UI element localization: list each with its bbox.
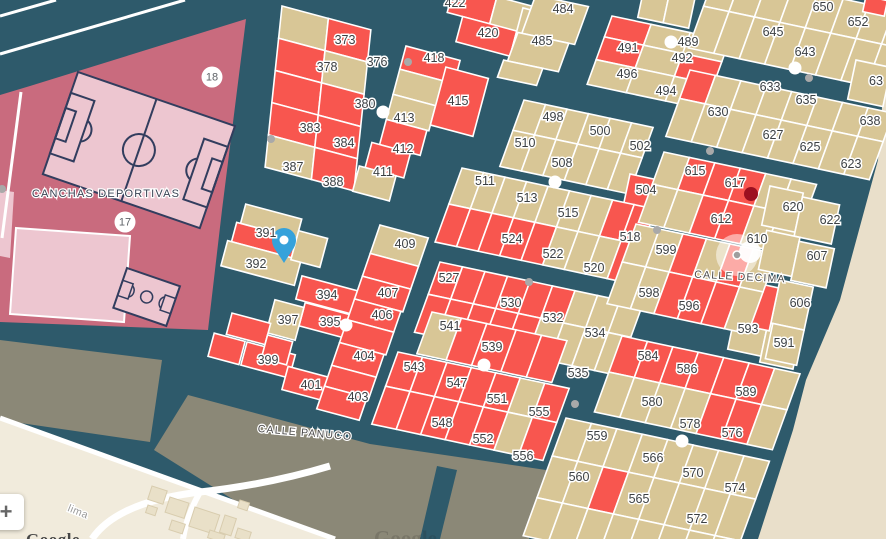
parcel-number: 422 — [445, 0, 466, 10]
parcel-number: 403 — [348, 390, 369, 404]
parcel-number: 570 — [683, 466, 704, 480]
red-dot-marker[interactable] — [744, 187, 758, 201]
parcel-number: 576 — [722, 426, 743, 440]
road-node — [665, 36, 678, 49]
parcel-number: 551 — [487, 392, 508, 406]
parcel-number: 524 — [502, 232, 523, 246]
parcel-number: 559 — [587, 429, 608, 443]
parcel-number: 539 — [482, 340, 503, 354]
road-node-small — [404, 58, 412, 66]
parcel-number: 580 — [642, 395, 663, 409]
parcel-number: 485 — [532, 34, 553, 48]
parcel-number: 615 — [685, 164, 706, 178]
parcel-number: 633 — [760, 80, 781, 94]
parcel-number: 555 — [529, 405, 550, 419]
area-label: CANCHAS DEPORTIVAS — [32, 188, 180, 200]
parcel-number: 406 — [372, 308, 393, 322]
parcel-number: 418 — [424, 51, 445, 65]
road-node-small — [525, 278, 533, 286]
parcel-number: 511 — [475, 174, 495, 188]
parcel-number: 591 — [774, 336, 795, 350]
parcel[interactable] — [663, 0, 695, 28]
parcel-number: 491 — [618, 41, 639, 55]
parcel-number: 518 — [620, 230, 641, 244]
parcel-number: 593 — [738, 322, 759, 336]
parcel-number: 63 — [869, 74, 883, 88]
parcel-number: 502 — [630, 139, 651, 153]
badge-number: 18 — [206, 72, 218, 84]
parcel-number: 543 — [404, 360, 425, 374]
road-node — [676, 435, 689, 448]
parcel-number: 584 — [638, 349, 659, 363]
parcel-number: 520 — [584, 261, 605, 275]
parcel-number: 643 — [795, 45, 816, 59]
parcel-number: 541 — [440, 319, 461, 333]
parcel-number: 504 — [636, 183, 657, 197]
parcel-number: 635 — [796, 93, 817, 107]
map-watermark: Google — [374, 526, 437, 539]
parcel-number: 560 — [569, 470, 590, 484]
parcel-number: 388 — [323, 175, 344, 189]
parcel-number: 565 — [629, 492, 650, 506]
parcel-number: 484 — [553, 2, 574, 16]
parcel-number: 500 — [590, 124, 611, 138]
parcel-number: 552 — [473, 432, 494, 446]
parcel-number: 599 — [656, 243, 677, 257]
road-node — [377, 106, 390, 119]
road-node — [478, 359, 491, 372]
parcel-number: 572 — [687, 512, 708, 526]
parcel-number: 547 — [447, 376, 468, 390]
road-node-small — [571, 400, 579, 408]
parcel-number: 399 — [258, 353, 279, 367]
parcel-number: 638 — [860, 114, 881, 128]
google-logo: Google — [26, 530, 80, 539]
parcel-number: 586 — [677, 362, 698, 376]
road-node-small — [653, 226, 661, 234]
parcel-number: 598 — [639, 286, 660, 300]
pin-hole — [280, 236, 289, 245]
parcel-number: 383 — [300, 121, 321, 135]
parcel-number: 397 — [278, 313, 299, 327]
parcel-number: 627 — [763, 128, 784, 142]
parcel-number: 373 — [335, 33, 356, 47]
parcel-number: 513 — [517, 191, 538, 205]
parcel-number: 498 — [543, 110, 564, 124]
parcel-number: 411 — [373, 165, 393, 179]
parcel-number: 548 — [432, 416, 453, 430]
parcel-number: 578 — [680, 417, 701, 431]
parcel-number: 409 — [395, 237, 416, 251]
parcel-number: 617 — [725, 176, 746, 190]
parcel-number: 589 — [736, 385, 757, 399]
parcel-number: 607 — [807, 249, 828, 263]
parcel-number: 612 — [711, 212, 732, 226]
parcel-number: 527 — [439, 271, 460, 285]
parcel-number: 492 — [672, 51, 693, 65]
parcel-number: 378 — [317, 60, 338, 74]
parcel-number: 650 — [813, 0, 834, 14]
parcel-number: 625 — [800, 140, 821, 154]
parcel-number: 420 — [478, 26, 499, 40]
parcel-number: 394 — [317, 288, 338, 302]
road-node-small — [706, 147, 714, 155]
parcel-number: 376 — [367, 55, 388, 69]
parcel-number: 623 — [841, 157, 862, 171]
parcel-number: 556 — [513, 449, 534, 463]
parcel-number: 630 — [708, 105, 729, 119]
parcel-number: 391 — [256, 226, 277, 240]
parcel-number: 489 — [678, 35, 699, 49]
parcel-number: 496 — [617, 67, 638, 81]
parcel-number: 380 — [355, 97, 376, 111]
parcel-number: 652 — [848, 15, 869, 29]
parcel-number: 622 — [820, 213, 841, 227]
parcel-number: 395 — [320, 315, 341, 329]
parcel[interactable] — [291, 231, 328, 268]
parcel-number: 387 — [283, 160, 304, 174]
parcel-number: 620 — [783, 200, 804, 214]
parcel-number: 515 — [558, 206, 579, 220]
parcel-number: 574 — [725, 481, 746, 495]
parcel-number: 645 — [763, 25, 784, 39]
parcel-number: 532 — [543, 311, 564, 325]
parcel-number: 610 — [747, 232, 768, 246]
parcel-number: 415 — [448, 94, 469, 108]
parcel-number: 401 — [301, 378, 322, 392]
zoom-in-button[interactable]: + — [0, 494, 24, 530]
parcel-number: 510 — [515, 136, 536, 150]
parcel-number: 535 — [568, 366, 589, 380]
parcel-number: 404 — [354, 349, 375, 363]
road-node — [549, 176, 562, 189]
road-node — [789, 62, 802, 75]
parcel-number: 530 — [501, 296, 522, 310]
parcel-number: 412 — [393, 142, 414, 156]
parcel-number: 392 — [246, 257, 267, 271]
parcel-number: 494 — [656, 84, 677, 98]
road-node — [340, 319, 353, 332]
map-canvas[interactable]: 3733763783803833843873883913923943953973… — [0, 0, 886, 539]
parcel-number: 606 — [790, 296, 811, 310]
parcel-number: 566 — [643, 451, 664, 465]
parcel-number: 596 — [679, 299, 700, 313]
road-node-small — [267, 135, 275, 143]
parcel-number: 413 — [394, 111, 415, 125]
parcel-number: 508 — [552, 156, 573, 170]
map-viewport[interactable]: 3733763783803833843873883913923943953973… — [0, 0, 886, 539]
parcel-number: 384 — [334, 136, 355, 150]
parcel-number: 407 — [378, 286, 399, 300]
badge-number: 17 — [119, 217, 131, 229]
road-node-small — [805, 74, 813, 82]
parcel-number: 534 — [585, 326, 606, 340]
parcel-number: 522 — [543, 247, 564, 261]
